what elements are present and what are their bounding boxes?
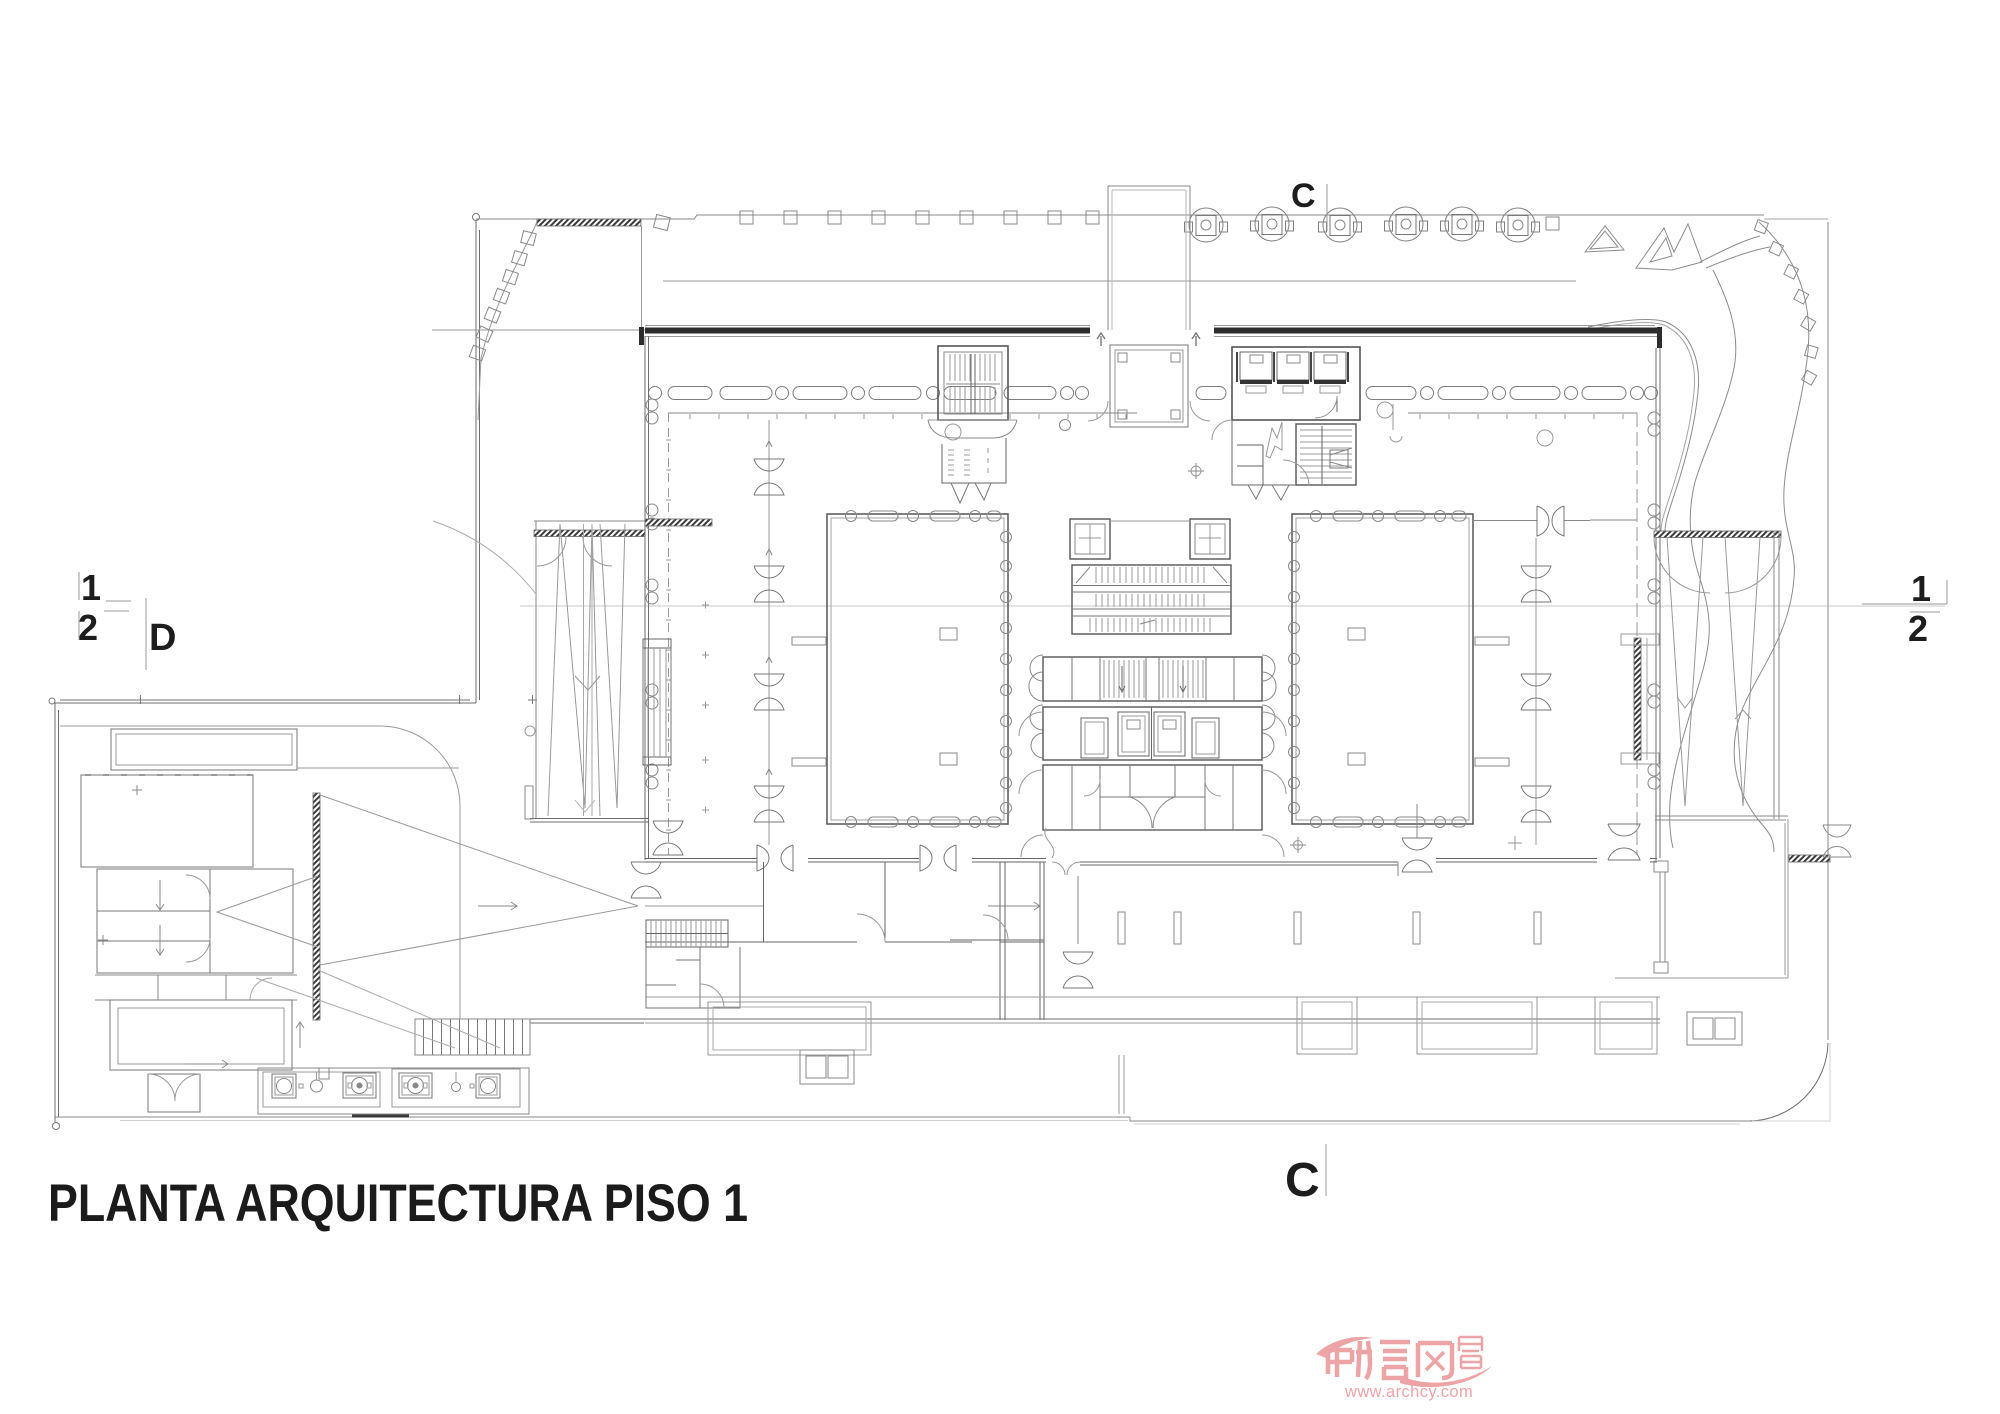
- svg-text:2: 2: [78, 607, 98, 648]
- svg-text:2: 2: [1908, 608, 1928, 649]
- svg-text:C: C: [1291, 177, 1316, 215]
- svg-text:D: D: [149, 617, 176, 659]
- svg-text:1: 1: [1911, 568, 1931, 609]
- svg-text:C: C: [1285, 1154, 1320, 1207]
- svg-text:1: 1: [81, 567, 101, 608]
- svg-text:www.archcy.com: www.archcy.com: [1344, 1383, 1473, 1401]
- svg-text:PLANTA ARQUITECTURA PISO 1: PLANTA ARQUITECTURA PISO 1: [48, 1174, 748, 1233]
